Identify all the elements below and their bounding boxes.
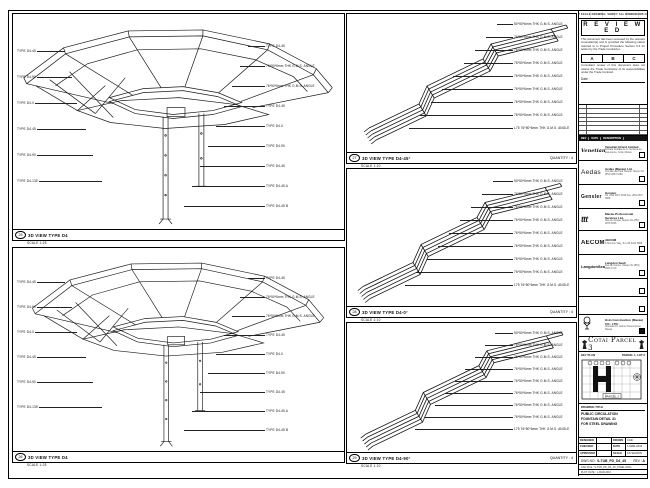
project-banner: Cotai Parcel 3: [579, 337, 647, 352]
field-value: CAD: [626, 438, 647, 443]
umbrella-structure-drawing: TYPE D4-4576*50*6mm THK G.M.S. ANGLE76*5…: [13, 248, 344, 451]
angle-bundle-drawing: 50*50*6mm THK G.M.S. ANGLE76*50*6mm THK …: [347, 14, 576, 152]
leader-label: 76*50*6mm THK G.M.S. ANGLE: [427, 257, 564, 261]
langdon-seah-logo: LangdonSeah: [581, 264, 605, 269]
field-label: CHECKED: [579, 444, 597, 449]
quantity-note: QUANTITY : 4: [550, 456, 573, 460]
review-checkbox: [639, 270, 645, 276]
dwg-number-row: DWG NO : S-TUB_PD_D4_45 REV : A: [579, 457, 647, 465]
consultant-row-blank-2: [579, 297, 647, 315]
panel-title: 3D VIEW TYPE D4: [28, 455, 68, 460]
leader-label: 76*50*6mm THK G.M.S. ANGLE: [460, 218, 564, 222]
umbrella-structure-drawing: TYPE D4-4576*50*6mm THK G.M.S. ANGLE76*5…: [13, 14, 344, 229]
leader-label: 76*50*6mm THK G.M.S. ANGLE: [486, 35, 564, 39]
revision-row: [579, 131, 647, 135]
leader-label: 76*50*6mm THK G.M.S. ANGLE: [445, 391, 564, 395]
review-checkbox: [639, 328, 645, 334]
sheet-border: TYPE D4-4576*50*6mm THK G.M.S. ANGLE76*5…: [8, 10, 648, 479]
view-panel-mid-top: 50*50*6mm THK G.M.S. ANGLE76*50*6mm THK …: [346, 13, 577, 164]
leader-labels: 50*50*6mm THK G.M.S. ANGLE76*50*6mm THK …: [347, 14, 576, 152]
review-stamp: R E V I E W E D This document has been r…: [579, 19, 647, 105]
leader-label: 76*50*6mm THK G.M.S. ANGLE: [453, 74, 564, 78]
rev-label: REV :: [633, 459, 641, 463]
plot-date-value: 1-MAR-2016: [597, 471, 611, 474]
rev-value: A: [643, 459, 645, 463]
leader-labels-left: TYPE D4-45TYPE D4-90TYPE D4-0TYPE D4-45T…: [13, 14, 344, 229]
drawing-title-block: DRAWING TITLE PUBLIC CIRCULATION FOUNTAI…: [579, 404, 647, 438]
leader-label: 50*50*6mm THK G.M.S. ANGLE: [493, 179, 564, 183]
stamp-paragraph-1: This document has been reviewed by the r…: [581, 38, 645, 53]
leader-label: TYPE D4-45: [16, 49, 65, 53]
leader-label: 76*50*6mm THK G.M.S. ANGLE: [464, 61, 564, 65]
field-value: 1-MAR-2016: [626, 444, 647, 449]
leader-label: 50*50*6mm THK G.M.S. ANGLE: [495, 331, 564, 335]
ornament-icon: [581, 339, 588, 350]
view-panel-left-bottom: TYPE D4-4576*50*6mm THK G.M.S. ANGLE76*5…: [12, 247, 345, 463]
leader-label: 76*50*6mm THK G.M.S. ANGLE: [425, 415, 564, 419]
leader-label: TYPE D4-90: [16, 380, 93, 384]
panel-title-bar: 29 3D VIEW TYPE D4-90° QUANTITY : 4: [347, 452, 576, 463]
panel-title-bar: 25 3D VIEW TYPE D4: [13, 229, 344, 240]
status-row: A B C: [581, 54, 645, 63]
stamp-date-line: Date :: [581, 77, 645, 83]
review-checkbox: [639, 306, 645, 312]
field-label: DATE: [612, 444, 626, 449]
field-row: APPROVED - SCALE AS SHOWN: [579, 451, 647, 456]
field-label: APPROVED: [579, 451, 597, 456]
drawing-title-header: DRAWING TITLE: [581, 405, 645, 411]
leader-label: 76*50*6mm THK G.M.S. ANGLE: [449, 231, 564, 235]
review-checkbox: [639, 246, 645, 252]
angle-bundle-drawing: 50*50*6mm THK G.M.S. ANGLE76*50*6mm THK …: [347, 323, 576, 452]
leader-labels: 50*50*6mm THK G.M.S. ANGLE76*50*6mm THK …: [347, 169, 576, 306]
leader-label: 76*50*6mm THK G.M.S. ANGLE: [475, 48, 564, 52]
leader-label: TYPE D4-0: [16, 330, 77, 334]
contractor-row: Hsin Construction (Macau) CO., LTD. Alam…: [579, 315, 647, 337]
review-checkbox: [639, 288, 645, 294]
leader-label: L75 76*50*6mm THK G.M.S. ANGLE: [405, 283, 570, 287]
status-c: C: [624, 55, 644, 62]
view-panel-mid-bottom: 50*50*6mm THK G.M.S. ANGLE76*50*6mm THK …: [346, 322, 577, 464]
detail-ref-bubble: 25: [15, 231, 26, 240]
detail-ref-bubble: 28: [349, 308, 360, 317]
leader-label: TYPE D4-135: [16, 405, 102, 409]
panel-title: 3D VIEW TYPE D4-0°: [362, 310, 408, 315]
sheet-note-strip: DO NOT SCALE DRAWING. VERIFY ALL DIMENSI…: [579, 11, 647, 19]
consultant-row-venetian: Venetian Venetian Orient Limited Estrada…: [579, 141, 647, 161]
scale-note: SCALE 1:25: [27, 463, 47, 467]
leader-label: 76*50*6mm THK G.M.S. ANGLE: [482, 192, 564, 196]
panel-title: 3D VIEW TYPE D4: [28, 233, 68, 238]
aecom-logo: AECOM: [581, 240, 605, 246]
detail-ref-bubble: 27: [349, 154, 360, 163]
leader-label: 76*50*6mm THK G.M.S. ANGLE: [465, 367, 564, 371]
leader-label: TYPE D4-135: [16, 179, 102, 183]
leader-label: 76*50*6mm THK G.M.S. ANGLE: [485, 343, 564, 347]
title-block-column: DO NOT SCALE DRAWING. VERIFY ALL DIMENSI…: [578, 11, 647, 476]
ornament-icon: [638, 339, 645, 350]
detail-ref-bubble: 29: [349, 454, 360, 463]
field-value: [597, 438, 612, 443]
cad-file-value: S-TUB_PD_D4_45_STEEL.DWG: [594, 466, 631, 469]
leader-label: 76*50*6mm THK G.M.S. ANGLE: [416, 270, 564, 274]
review-checkbox: [639, 222, 645, 228]
leader-label: TYPE D4-90: [16, 305, 72, 309]
leader-label: TYPE D4-90: [16, 153, 93, 157]
leader-label: TYPE D4-90: [16, 75, 72, 79]
field-label: DESIGNED: [579, 438, 597, 443]
scale-note: SCALE 1:10: [361, 464, 381, 468]
leader-label: 76*50*6mm THK G.M.S. ANGLE: [471, 205, 564, 209]
leader-label: 76*50*6mm THK G.M.S. ANGLE: [475, 355, 564, 359]
reviewed-stamp-title: R E V I E W E D: [581, 20, 645, 36]
plot-date-row: PLOT DATE : 1-MAR-2016: [579, 470, 647, 475]
dwg-no-label: DWG NO :: [581, 459, 596, 463]
sign-off-fields: DESIGNED DRAWN CAD CHECKED - DATE 1-MAR-…: [579, 438, 647, 457]
revision-table: [579, 105, 647, 136]
angle-bundle-drawing: 50*50*6mm THK G.M.S. ANGLE76*50*6mm THK …: [347, 169, 576, 306]
consultant-row-aecom: AECOM AECOM 8 Shenton Way, Tel +65 6222 …: [579, 231, 647, 255]
leader-label: TYPE D4-45: [16, 355, 86, 359]
drawing-title-line: FOR STEEL DRAWING: [581, 422, 645, 427]
field-label: SCALE: [612, 451, 626, 456]
leader-labels-left: TYPE D4-45TYPE D4-90TYPE D4-0TYPE D4-45T…: [13, 248, 344, 451]
leader-label: 76*50*6mm THK G.M.S. ANGLE: [455, 379, 564, 383]
scale-note: SCALE 1:25: [27, 241, 47, 245]
key-plan: KEY PLAN PARCEL 1, LOT 2 PARCEL 2: [579, 352, 647, 404]
description-col-header: DESCRIPTION: [601, 137, 624, 140]
rev-col-header: REV: [579, 137, 589, 140]
panel-title-bar: 26 3D VIEW TYPE D4: [13, 451, 344, 462]
review-checkbox: [639, 152, 645, 158]
drawing-sheet-page: TYPE D4-4576*50*6mm THK G.M.S. ANGLE76*5…: [0, 0, 650, 488]
review-checkbox: [639, 200, 645, 206]
consultant-row-gensler: Gensler Gensler Tel +852 2527 0168 Fax +…: [579, 185, 647, 209]
consultant-row-langdon-seah: LangdonSeah Langdon Seah Rua do Campo, M…: [579, 255, 647, 279]
review-checkbox: [639, 176, 645, 182]
leader-label: L75 76*50*6mm THK G.M.S. ANGLE: [415, 427, 570, 431]
leader-label: L75 76*50*6mm THK G.M.S. ANGLE: [409, 126, 570, 130]
quantity-note: QUANTITY : 4: [550, 310, 573, 314]
leader-label: 50*50*6mm THK G.M.S. ANGLE: [497, 22, 564, 26]
aedas-logo: Aedas: [581, 169, 605, 176]
field-value: -: [597, 444, 612, 449]
leader-label: 76*50*6mm THK G.M.S. ANGLE: [420, 113, 564, 117]
leader-label: 76*50*6mm THK G.M.S. ANGLE: [442, 87, 564, 91]
detail-ref-bubble: 26: [15, 453, 26, 462]
venetian-logo: Venetian: [581, 148, 605, 154]
field-label: DRAWN: [612, 438, 626, 443]
leader-label: 76*50*6mm THK G.M.S. ANGLE: [435, 403, 564, 407]
project-name: Cotai Parcel 3: [588, 336, 638, 352]
panel-title-bar: 27 3D VIEW TYPE D4-45° QUANTITY : 4: [347, 152, 576, 163]
leader-label: 76*50*6mm THK G.M.S. ANGLE: [431, 100, 564, 104]
leader-labels: 50*50*6mm THK G.M.S. ANGLE76*50*6mm THK …: [347, 323, 576, 452]
panel-title-bar: 28 3D VIEW TYPE D4-0° QUANTITY : 4: [347, 306, 576, 317]
status-b: B: [603, 55, 624, 62]
panel-title: 3D VIEW TYPE D4-45°: [362, 156, 411, 161]
status-a: A: [582, 55, 603, 62]
gensler-logo: Gensler: [581, 194, 605, 200]
consultant-row-blank-1: [579, 279, 647, 297]
leader-label: TYPE D4-0: [16, 101, 77, 105]
quantity-note: QUANTITY : 4: [550, 156, 573, 160]
field-value: -: [597, 451, 612, 456]
contractor-logo-icon: [581, 316, 605, 335]
consultant-row-macau-professional: ttt Macau Professional Services Ltd. Rua…: [579, 209, 647, 231]
panel-title: 3D VIEW TYPE D4-90°: [362, 456, 411, 461]
field-value: AS SHOWN: [626, 451, 647, 456]
macau-professional-logo: ttt: [581, 215, 605, 224]
view-panel-left-top: TYPE D4-4576*50*6mm THK G.M.S. ANGLE76*5…: [12, 13, 345, 241]
consultant-row-aedas: Aedas Aedas (Macau) Ltd. Avenida da Prai…: [579, 161, 647, 185]
view-panel-mid-middle: 50*50*6mm THK G.M.S. ANGLE76*50*6mm THK …: [346, 168, 577, 318]
stamp-paragraph-2: Consultant review of this document does …: [581, 64, 645, 75]
dwg-no-value: S-TUB_PD_D4_45: [597, 459, 626, 463]
key-plan-map: PARCEL 2: [581, 357, 645, 401]
leader-label: TYPE D4-45: [16, 127, 86, 131]
date-col-header: DATE: [589, 137, 601, 140]
key-plan-sub-label: PARCEL 2: [605, 395, 620, 399]
leader-label: TYPE D4-45: [16, 280, 65, 284]
leader-label: 76*50*6mm THK G.M.S. ANGLE: [438, 244, 564, 248]
cad-file-label: CAD FILE :: [581, 466, 594, 469]
plot-date-label: PLOT DATE :: [581, 471, 596, 474]
